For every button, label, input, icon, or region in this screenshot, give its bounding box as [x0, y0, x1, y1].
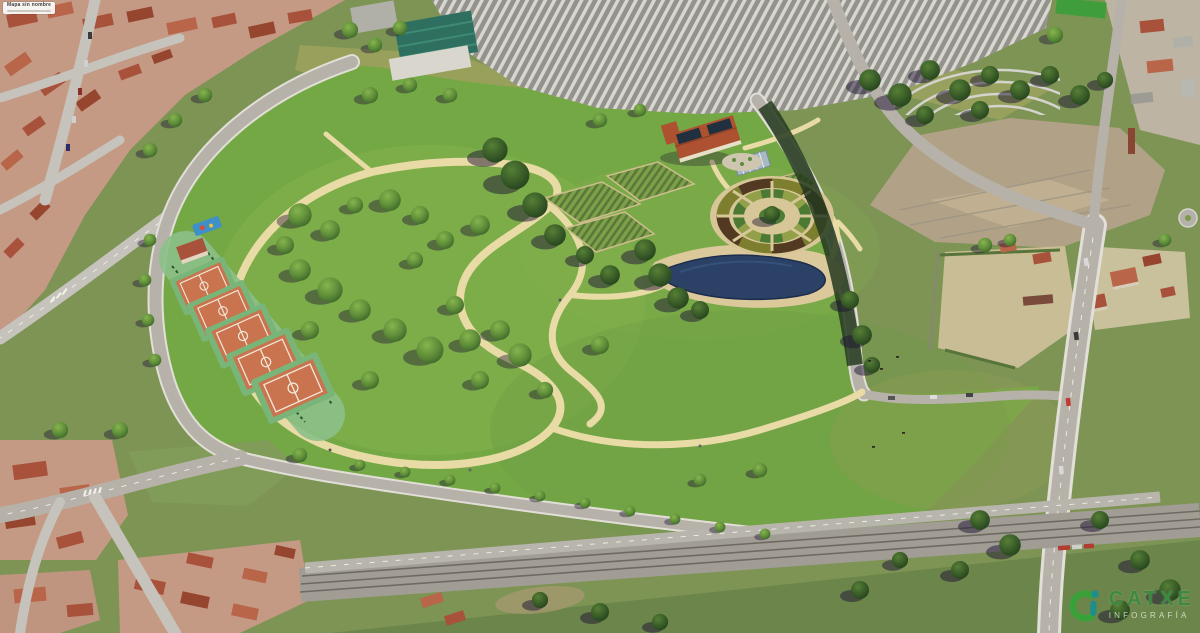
logo-name: CATXE: [1109, 589, 1195, 609]
ci-monogram-icon: [1068, 586, 1106, 624]
map-title: Mapa sin nombre: [7, 3, 51, 9]
map-subtitle-bar: [7, 10, 51, 12]
aerial-scene: [0, 0, 1200, 633]
catxe-logo: CATXE INFOGRAFÍA: [1068, 586, 1195, 624]
map-title-pill[interactable]: Mapa sin nombre: [3, 2, 55, 14]
logo-text: CATXE INFOGRAFÍA: [1109, 589, 1195, 620]
aerial-park-render: Mapa sin nombre CATXE INFOGRAFÍA: [0, 0, 1200, 633]
logo-tagline: INFOGRAFÍA: [1109, 611, 1195, 620]
